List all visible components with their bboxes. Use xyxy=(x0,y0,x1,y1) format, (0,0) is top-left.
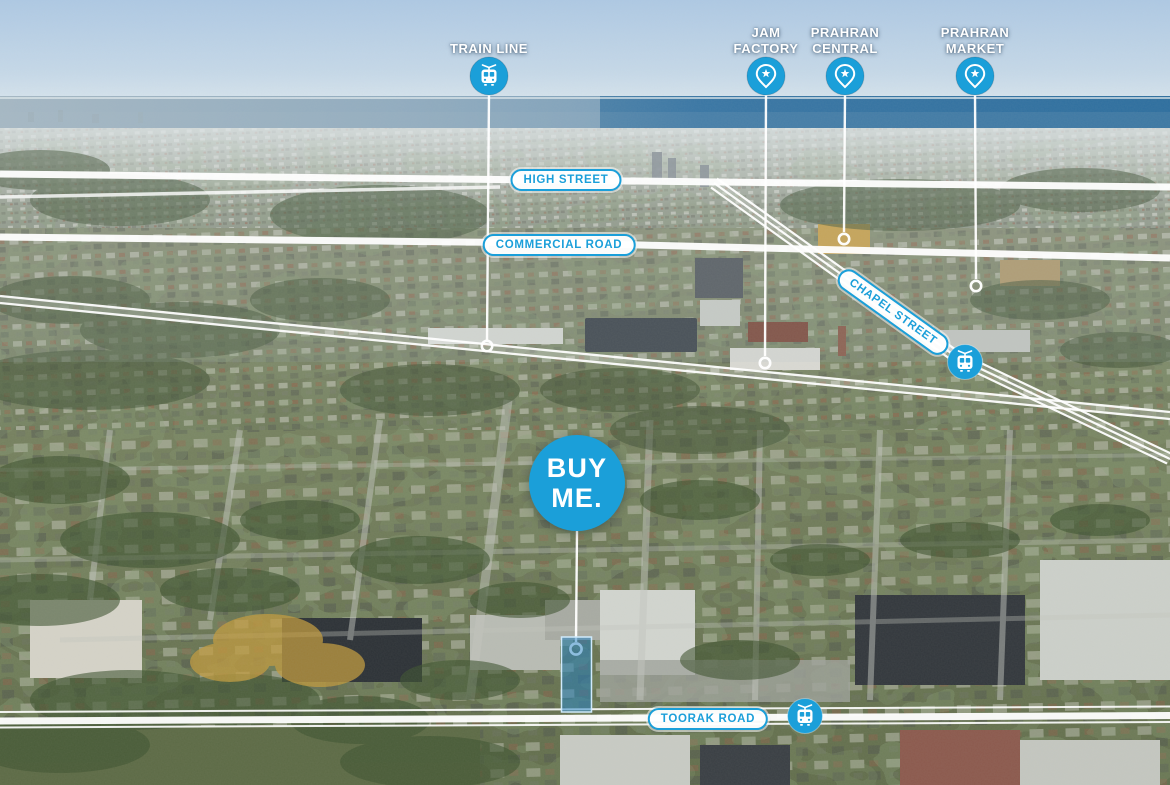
target-ring-prahran-market xyxy=(971,281,981,291)
pointer-line-buy-me xyxy=(576,531,577,642)
pin-train-line xyxy=(470,57,508,95)
map-annotation-overlay xyxy=(0,0,1170,785)
pointer-line-train-line xyxy=(487,94,489,340)
property-boundary-highlight xyxy=(562,637,592,712)
pin-jam-factory xyxy=(747,57,785,95)
road-line-chapel-street xyxy=(711,179,1170,464)
tram-stop-chapel-street xyxy=(948,345,983,380)
target-ring-jam-factory xyxy=(760,358,770,368)
road-line-commercial-road xyxy=(0,237,1170,258)
road-line-high-street xyxy=(0,174,1170,197)
tram-stop-toorak-road xyxy=(788,699,823,734)
aerial-marketing-image: TRAIN LINE JAM FACTORY PRAHRAN CENTRAL P… xyxy=(0,0,1170,785)
pointer-line-prahran-market xyxy=(975,94,976,279)
pin-prahran-central xyxy=(826,57,864,95)
pointer-line-prahran-central xyxy=(844,94,845,232)
target-ring-prahran-central xyxy=(839,234,849,244)
pointer-line-jam-factory xyxy=(765,94,766,356)
railway-line xyxy=(0,296,1170,419)
pin-prahran-market xyxy=(956,57,994,95)
